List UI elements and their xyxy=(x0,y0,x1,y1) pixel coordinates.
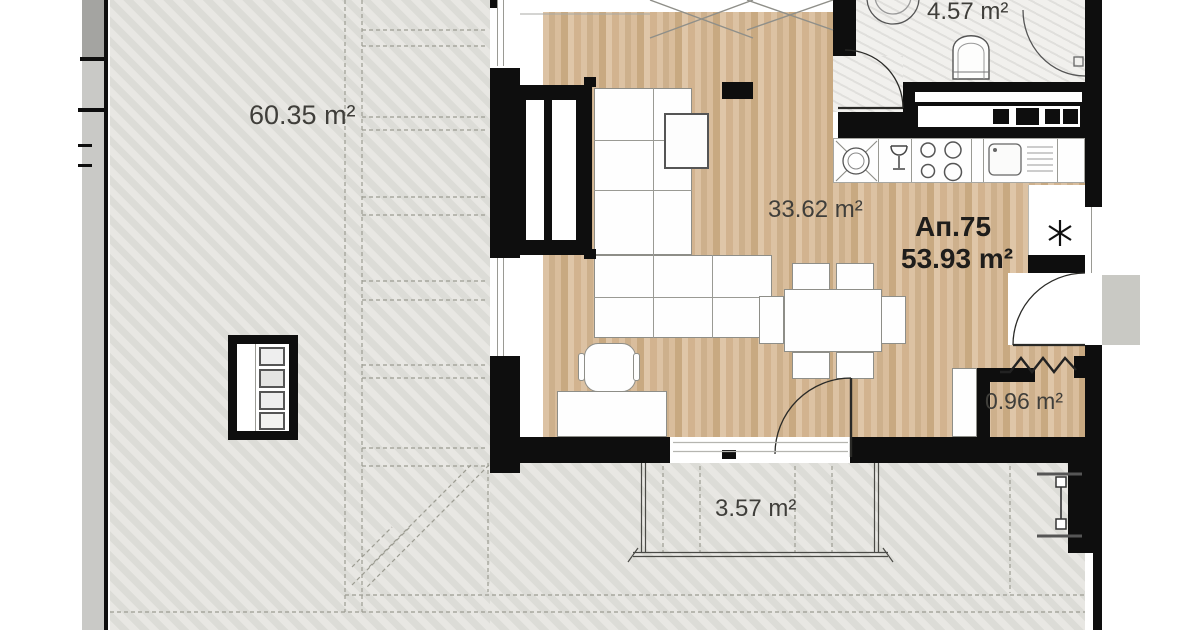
balcony-area-label: 3.57 m² xyxy=(715,495,796,523)
glass-icon xyxy=(891,146,907,169)
floor-plan: 60.35 m² 4.57 m² 33.62 m² Ап.75 53.93 m²… xyxy=(0,0,1200,630)
closet-zigzag xyxy=(1000,358,1076,372)
section-marker xyxy=(1037,474,1082,536)
balcony-threshold xyxy=(673,443,848,452)
closet-area-label: 0.96 m² xyxy=(985,388,1063,415)
apartment-number-label: Ап.75 xyxy=(915,211,991,243)
entrance-door-arc xyxy=(1013,273,1085,345)
balcony-door-arc xyxy=(775,378,851,457)
bathroom-area-label: 4.57 m² xyxy=(927,0,1008,26)
terrace-area-label: 60.35 m² xyxy=(249,100,356,131)
bathroom-door-arc xyxy=(838,50,903,108)
plan-linework xyxy=(0,0,1200,630)
shower-enclosure-icon xyxy=(1023,10,1085,76)
stove-burners-icon xyxy=(921,142,962,181)
basin-icon xyxy=(867,0,919,24)
toilet-icon xyxy=(953,36,989,79)
living-area-label: 33.62 m² xyxy=(768,196,863,224)
terrace-dashed-grid xyxy=(110,0,1085,612)
apartment-total-area-label: 53.93 m² xyxy=(901,243,1013,275)
kitchen-sink-icon xyxy=(989,144,1053,175)
snowflake-fridge-icon xyxy=(1049,220,1071,246)
wardrobe-x-icon xyxy=(520,0,833,38)
washing-machine-icon xyxy=(836,141,877,181)
